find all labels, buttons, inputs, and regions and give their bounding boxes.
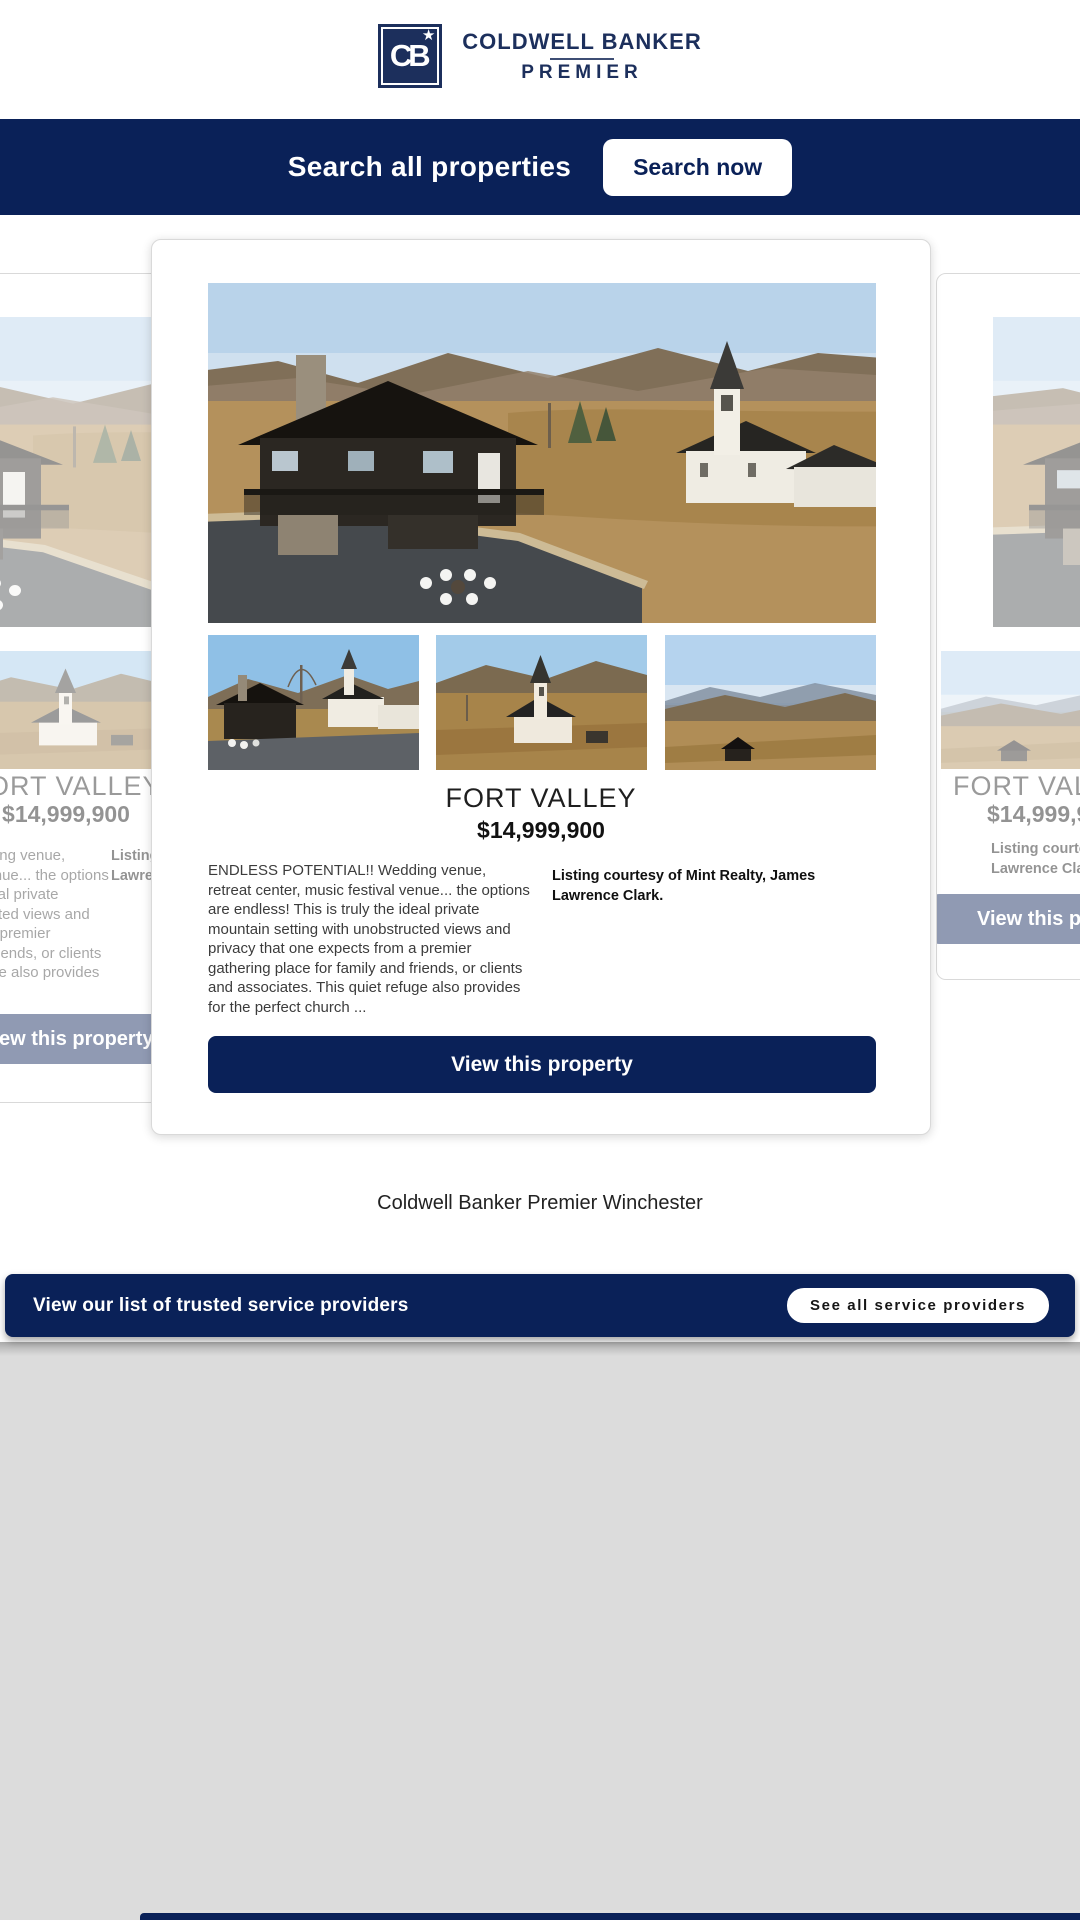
faded-card-overlay	[937, 274, 1080, 979]
providers-label: View our list of trusted service provide…	[33, 1295, 409, 1317]
brand-divider	[550, 58, 614, 60]
content-placeholder-area	[0, 1342, 1080, 1920]
brand-text: COLDWELL BANKER PREMIER	[462, 29, 701, 84]
property-price: $14,999,900	[152, 817, 930, 844]
star-icon: ★	[422, 28, 435, 43]
next-section-banner-edge	[140, 1913, 1080, 1920]
thumbnail-street[interactable]	[208, 635, 419, 770]
page: { "colors": { "navy": "#0a2158", "logo_n…	[0, 0, 1080, 1920]
listing-courtesy: Listing courtesy of Mint Realty, James L…	[552, 866, 864, 906]
property-card-main: FORT VALLEY $14,999,900 ENDLESS POTENTIA…	[151, 239, 931, 1135]
thumbnail-church[interactable]	[436, 635, 647, 770]
brand-name: COLDWELL BANKER	[462, 29, 701, 55]
property-title: FORT VALLEY	[152, 783, 930, 814]
property-photo[interactable]	[208, 283, 876, 623]
search-now-button[interactable]: Search now	[603, 139, 792, 196]
view-property-button[interactable]: View this property	[208, 1036, 876, 1093]
property-card-next[interactable]: FORT VALLEY $14,999,900 Listing courtesy…	[936, 273, 1080, 980]
office-name: Coldwell Banker Premier Winchester	[0, 1192, 1080, 1215]
property-description: ENDLESS POTENTIAL!! Wedding venue, retre…	[208, 861, 530, 1017]
cb-logo-mark: CB ★	[378, 24, 442, 88]
see-all-providers-button[interactable]: See all service providers	[787, 1288, 1049, 1323]
brand-logo[interactable]: CB ★ COLDWELL BANKER PREMIER	[0, 24, 1080, 88]
search-label: Search all properties	[288, 151, 571, 183]
thumbnail-valley[interactable]	[665, 635, 876, 770]
providers-banner: View our list of trusted service provide…	[5, 1274, 1075, 1337]
brand-subname: PREMIER	[462, 62, 701, 84]
property-carousel: FORT VALLEY $14,999,900 ENDLESS POTENTIA…	[0, 239, 1080, 1149]
search-bar: Search all properties Search now	[0, 119, 1080, 215]
site-header: CB ★ COLDWELL BANKER PREMIER	[0, 0, 1080, 119]
